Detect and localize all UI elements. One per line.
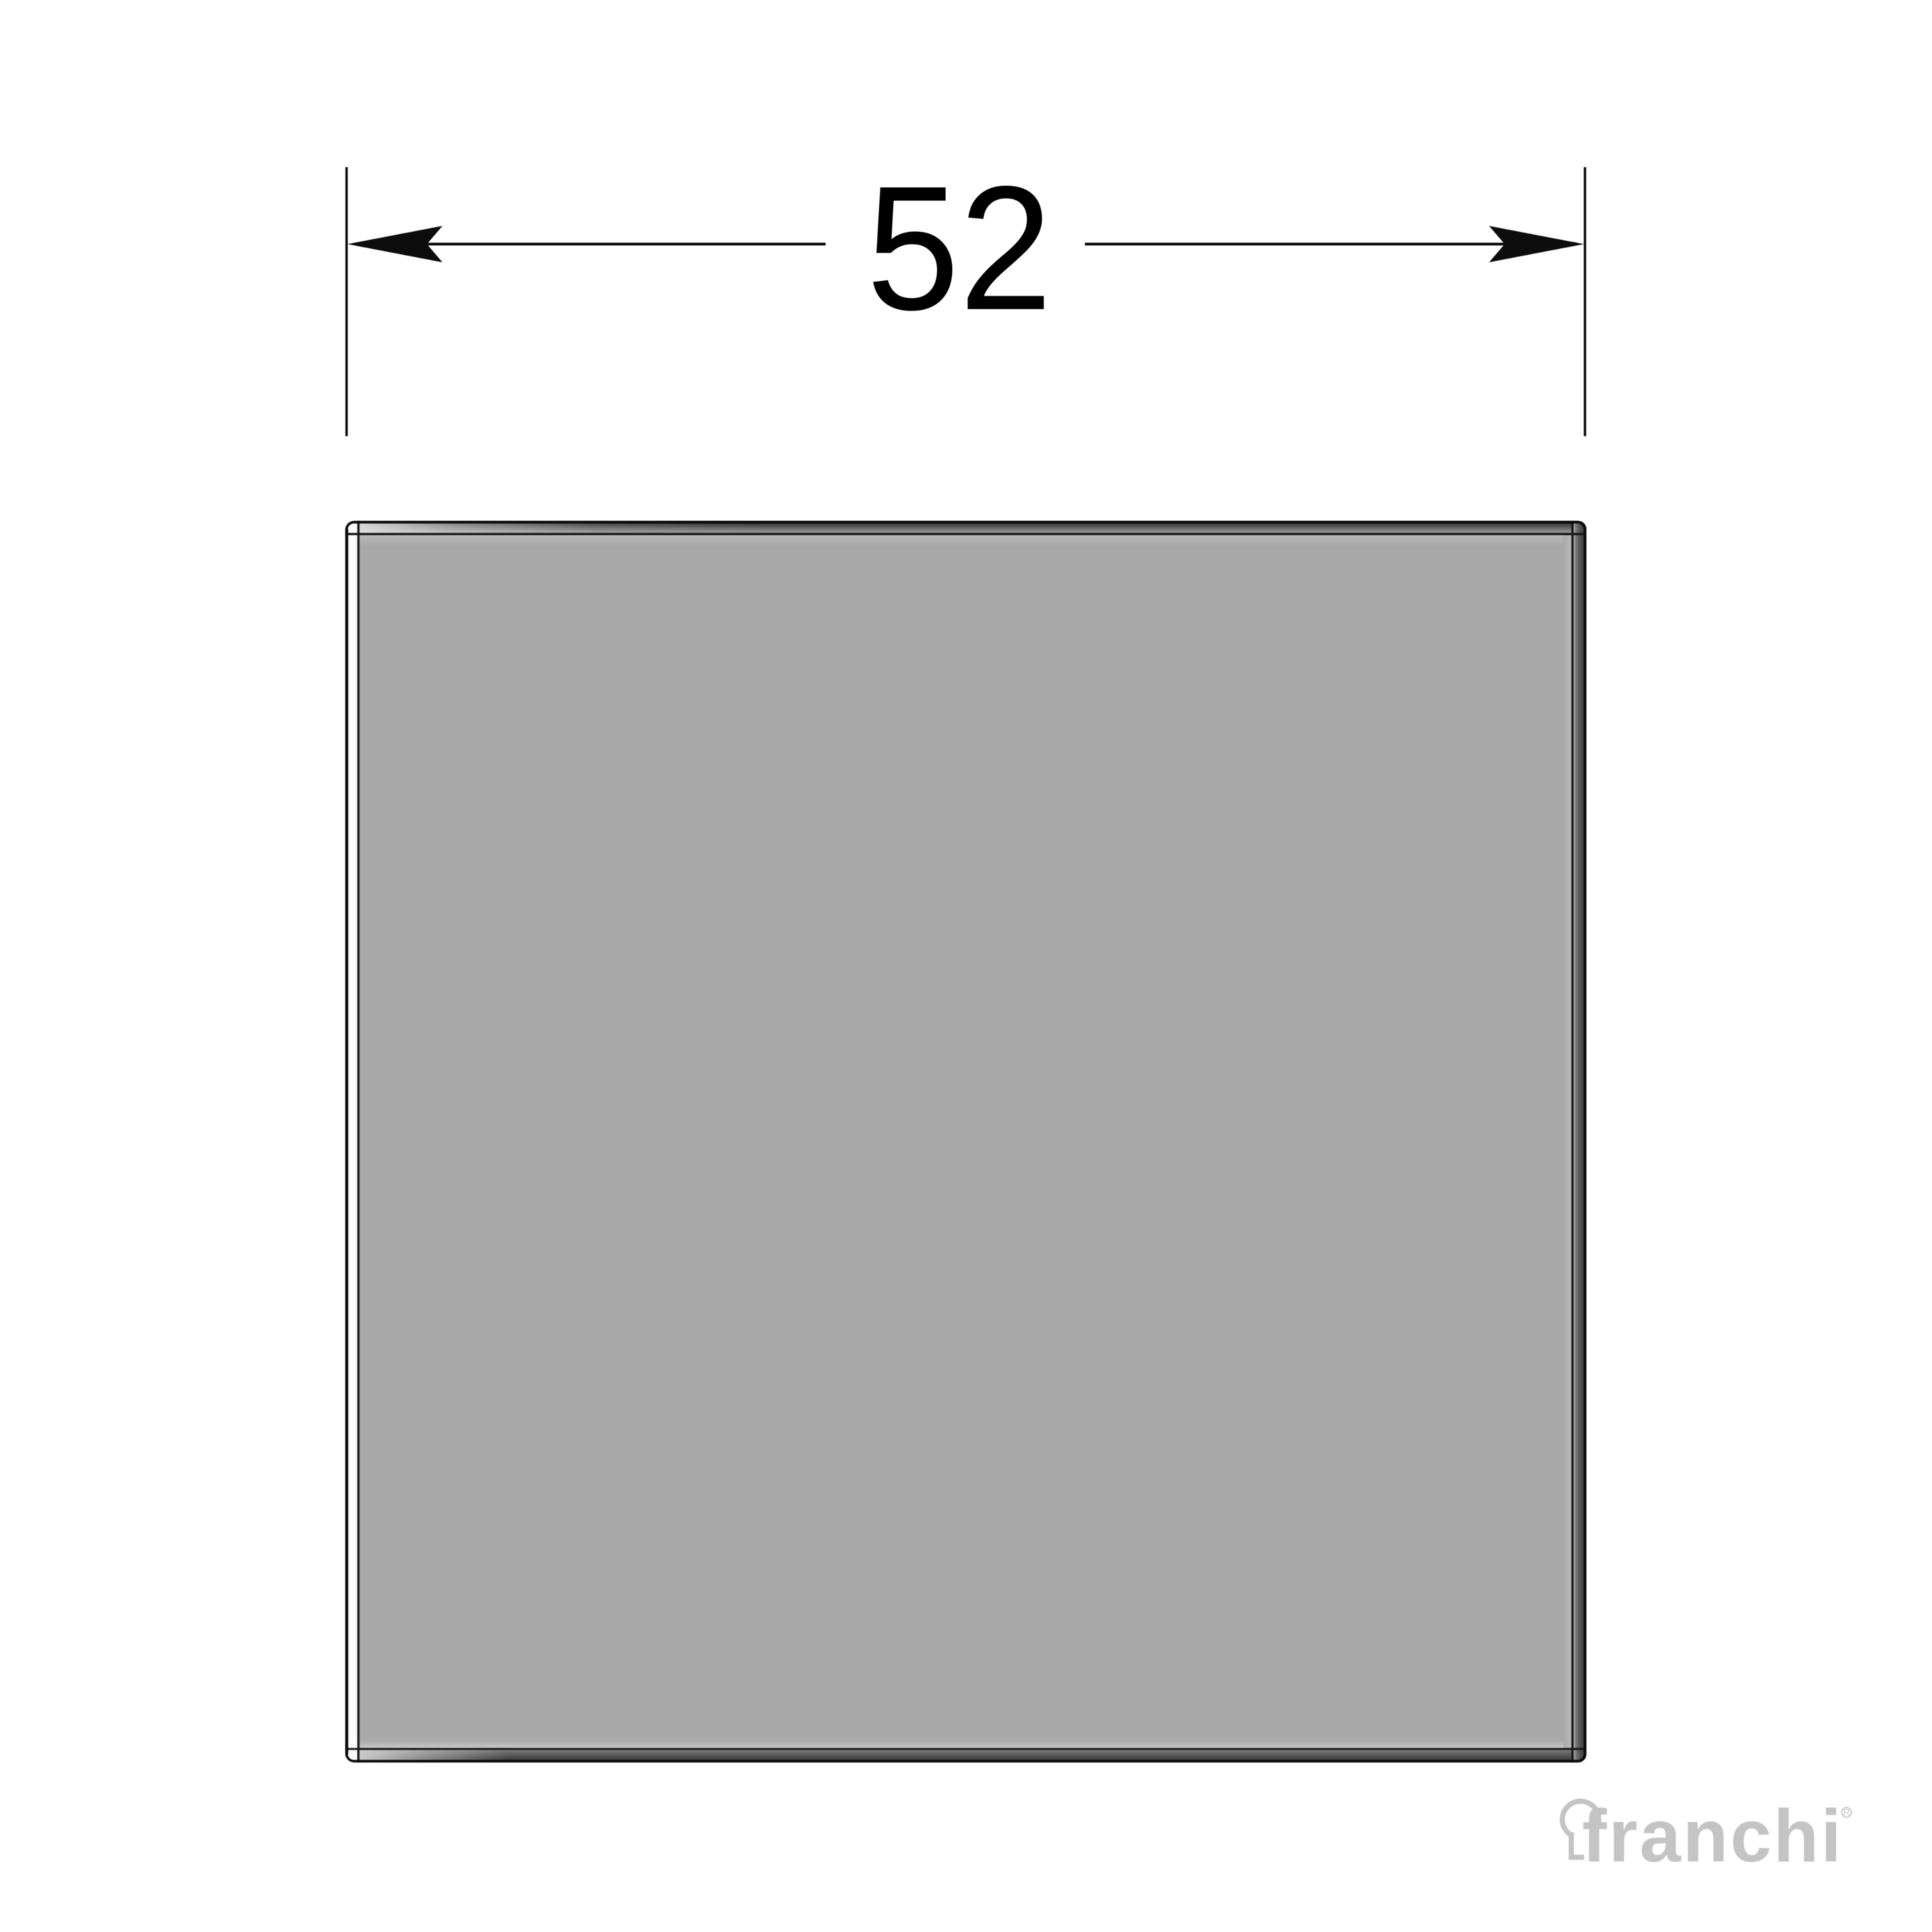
svg-text:R: R bbox=[1844, 1807, 1850, 1818]
svg-text:franchi: franchi bbox=[1582, 1795, 1844, 1878]
svg-text:52: 52 bbox=[866, 150, 1052, 347]
